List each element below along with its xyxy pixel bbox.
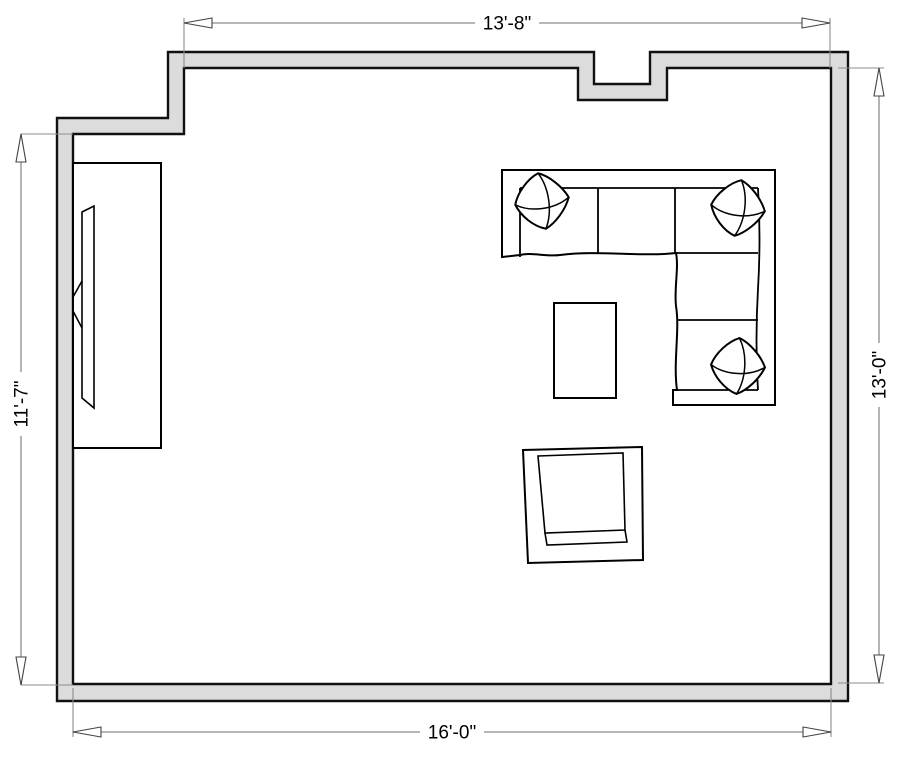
media-console [73, 163, 161, 448]
dim-arrow-top [874, 68, 884, 96]
dim-arrow-left [184, 18, 212, 28]
dim-arrow-top [16, 134, 26, 162]
dim-arrow-left [73, 727, 101, 737]
dim-arrow-bottom [16, 657, 26, 685]
dim-arrow-bottom [874, 655, 884, 683]
floor-plan-canvas: 13'-8" 16'-0" 11'-7" 13'-0" [0, 0, 900, 758]
floor-plan-svg: 13'-8" 16'-0" 11'-7" 13'-0" [0, 0, 900, 758]
dim-arrow-right [802, 18, 830, 28]
dimension-top-label: 13'-8" [483, 14, 531, 35]
dim-arrow-right [803, 727, 831, 737]
coffee-table [554, 303, 616, 398]
dimension-right-label: 13'-0" [870, 351, 891, 399]
dimension-bottom-label: 16'-0" [428, 723, 476, 744]
dimension-left-label: 11'-7" [12, 381, 33, 428]
armchair [523, 447, 643, 563]
furniture-layer [73, 163, 775, 563]
